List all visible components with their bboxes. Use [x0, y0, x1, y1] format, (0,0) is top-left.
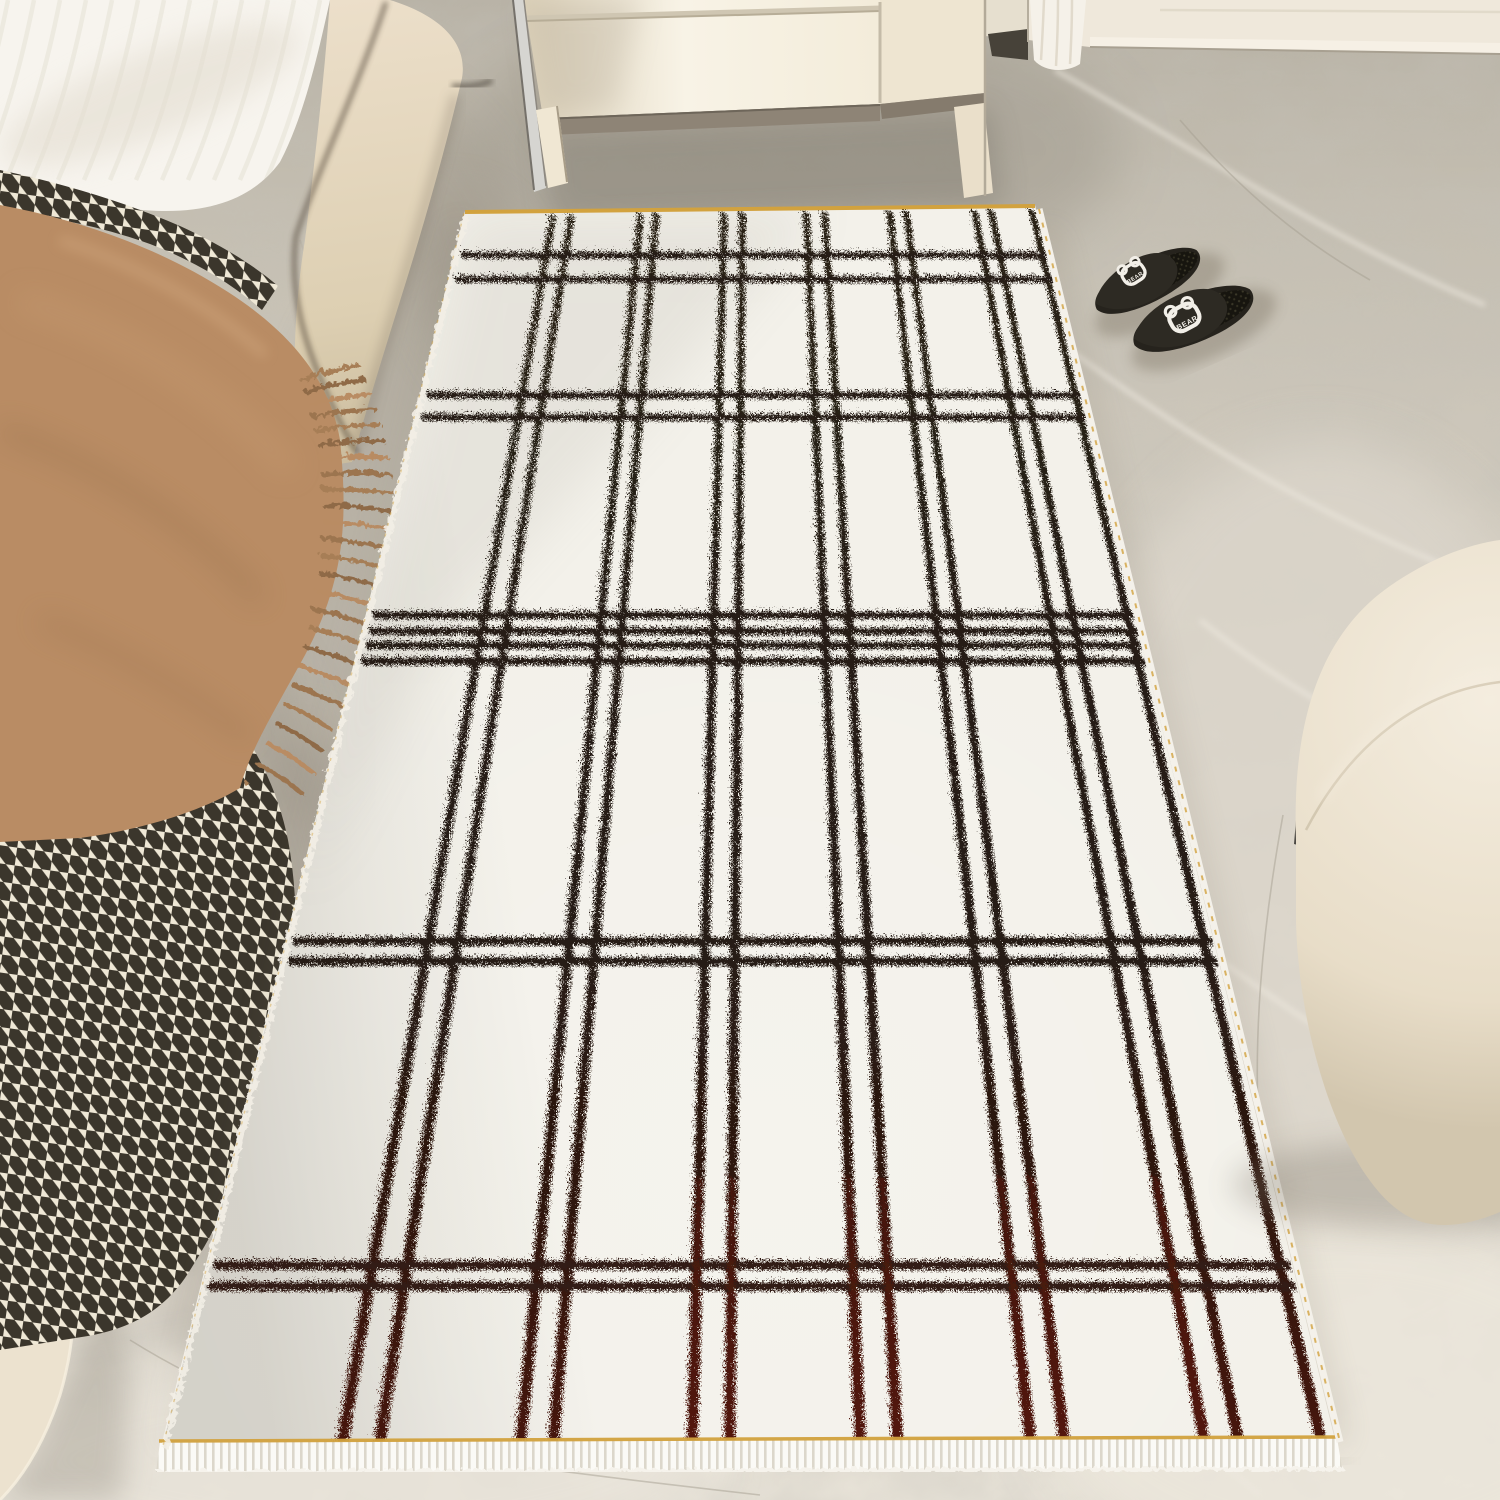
bedroom-scene: Bedroom lifestyle photo: white plush run…	[0, 0, 1500, 1500]
fringe-tassel	[319, 455, 385, 457]
rug-horizontal-line	[290, 934, 1210, 942]
rug-horizontal-line	[365, 624, 1134, 631]
nightstand	[513, 0, 1005, 225]
rug-horizontal-line	[205, 1279, 1292, 1288]
rug-horizontal-line	[285, 954, 1215, 962]
rug-horizontal-line	[451, 273, 1050, 279]
rug-horizontal-line	[457, 249, 1044, 255]
fringe-tassel	[321, 471, 388, 473]
rug-horizontal-line	[423, 389, 1078, 396]
rug-horizontal-line	[210, 1258, 1287, 1267]
rug-horizontal-line	[362, 638, 1138, 645]
rug-horizontal-line	[358, 654, 1142, 661]
rug-horizontal-line	[418, 411, 1084, 418]
scene-canvas: Bedroom lifestyle photo: white plush run…	[0, 0, 1500, 1500]
doorway-threshold	[988, 29, 1028, 60]
nightstand-right-unit	[880, 0, 985, 104]
rug-horizontal-line	[369, 608, 1131, 615]
